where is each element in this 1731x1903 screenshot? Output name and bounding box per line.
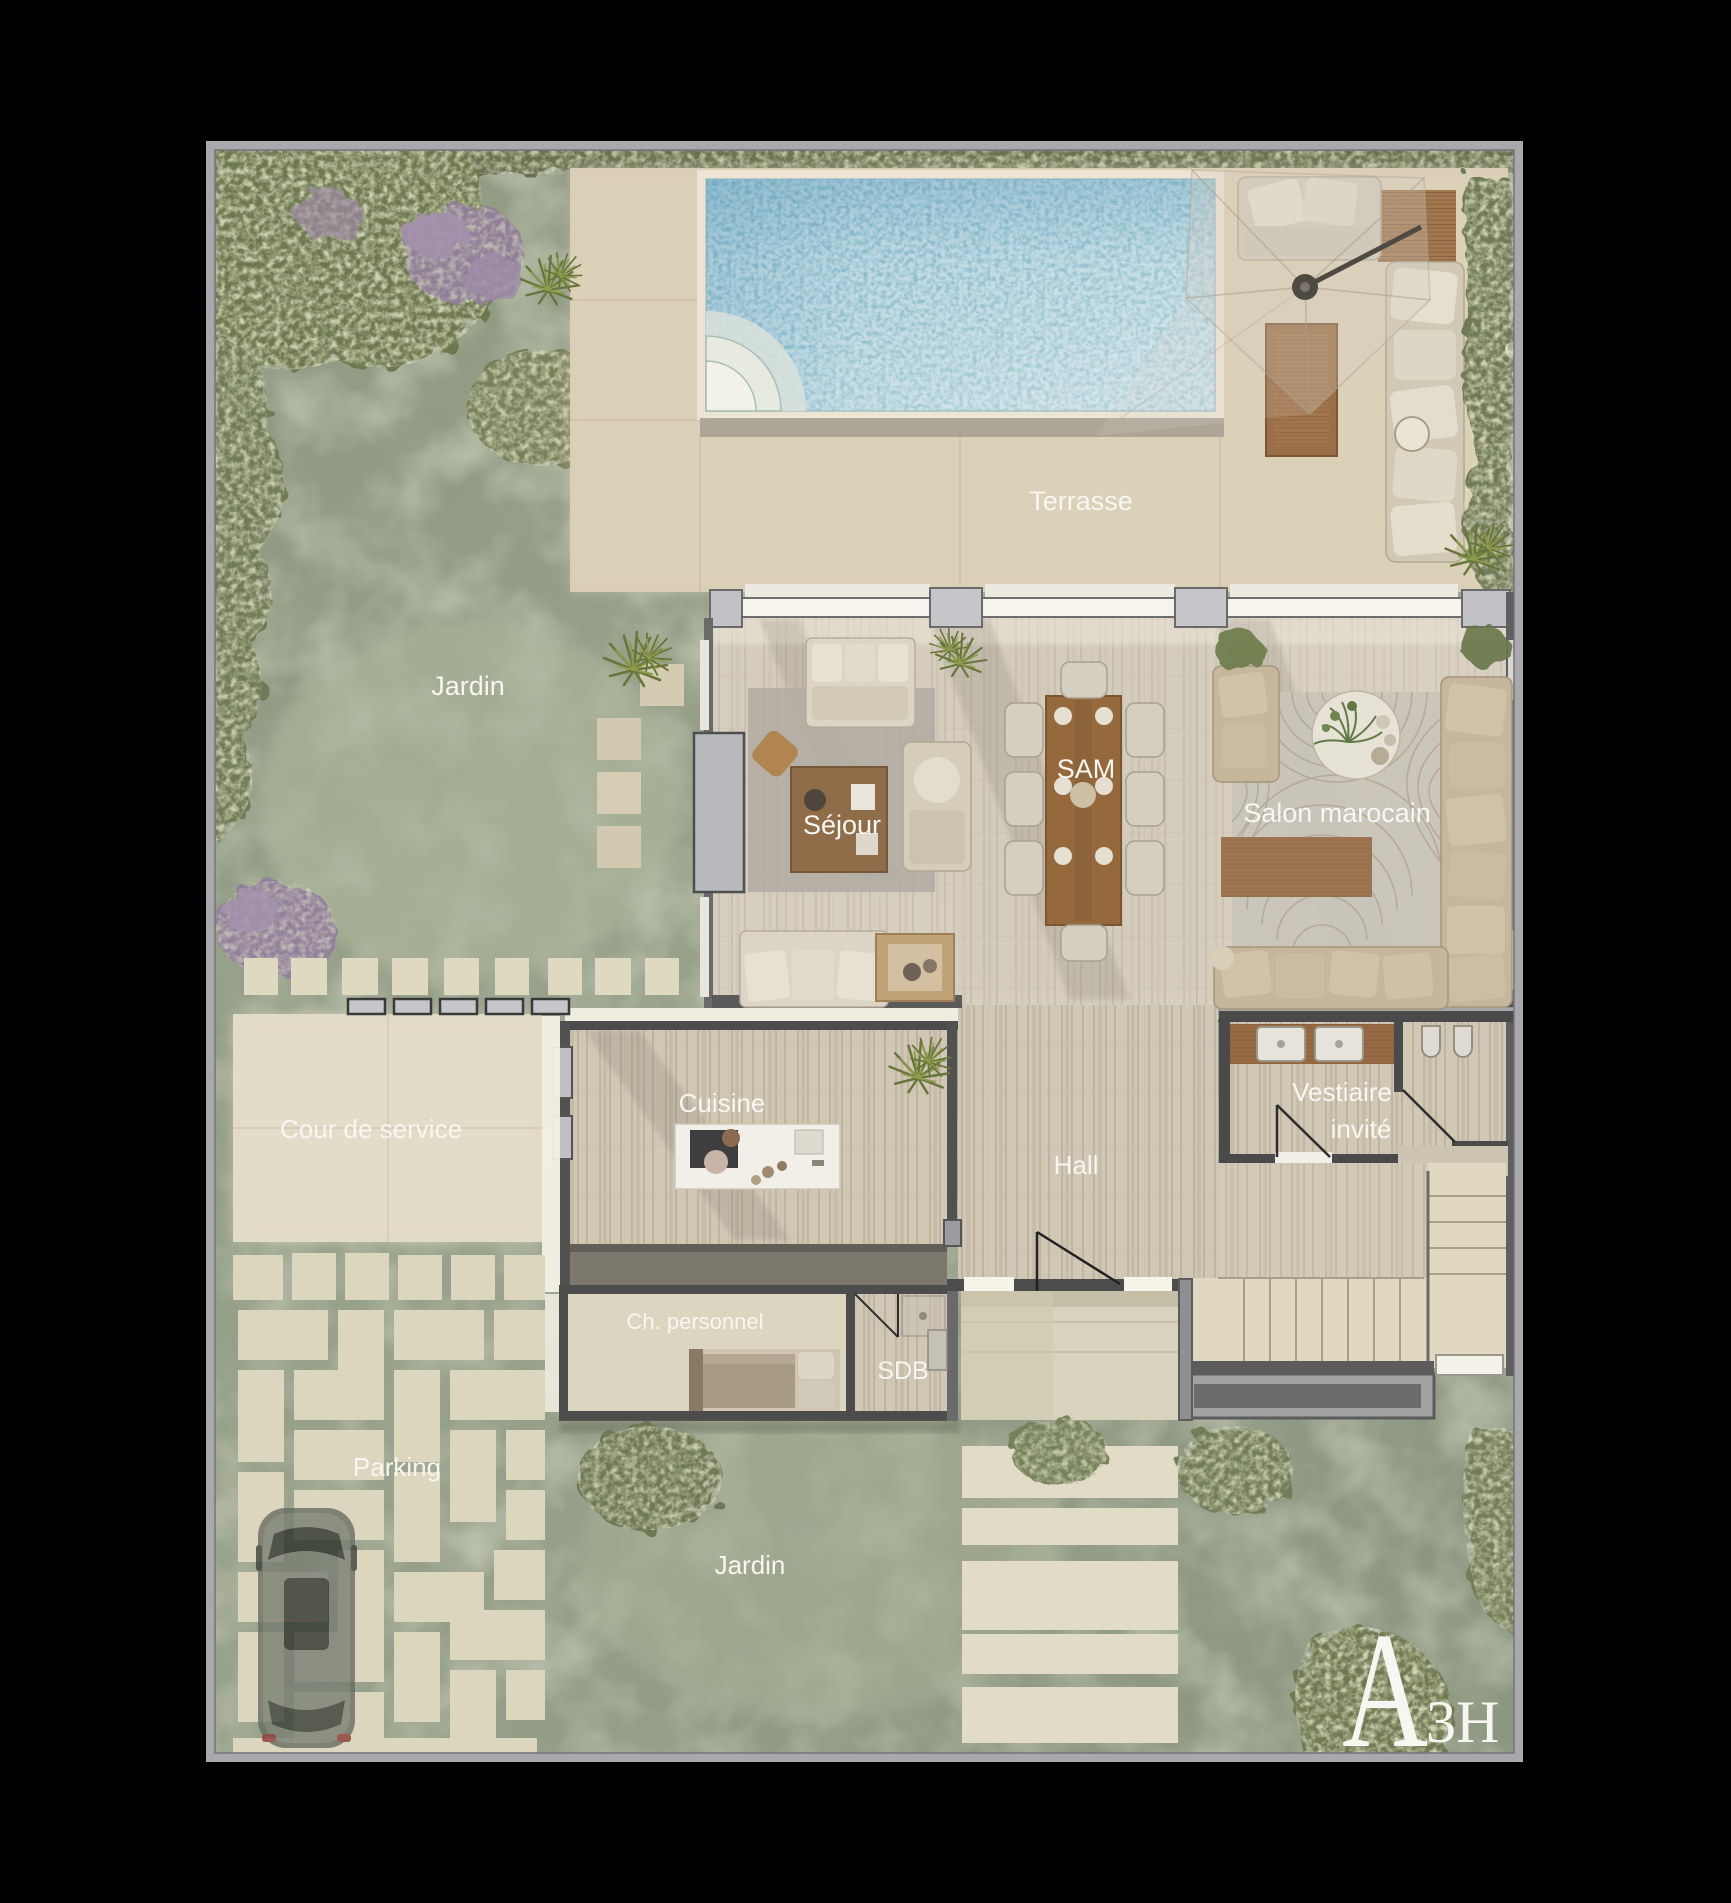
svg-text:Cuisine: Cuisine: [679, 1088, 766, 1118]
svg-text:Terrasse: Terrasse: [1029, 486, 1133, 516]
svg-text:SDB: SDB: [877, 1357, 928, 1385]
svg-text:SAM: SAM: [1057, 754, 1116, 784]
svg-text:Vestiaire: Vestiaire: [1292, 1077, 1392, 1107]
svg-text:Jardin: Jardin: [431, 671, 505, 701]
svg-text:A: A: [1342, 1598, 1428, 1762]
svg-text:3H: 3H: [1426, 1689, 1499, 1755]
svg-text:Salon marocain: Salon marocain: [1243, 798, 1431, 828]
svg-text:Ch. personnel: Ch. personnel: [627, 1309, 764, 1334]
svg-text:Séjour: Séjour: [803, 810, 881, 840]
svg-text:Jardin: Jardin: [715, 1550, 786, 1580]
svg-text:Cour de service: Cour de service: [280, 1114, 462, 1144]
svg-text:Hall: Hall: [1054, 1150, 1099, 1180]
svg-text:Parking: Parking: [353, 1452, 441, 1482]
svg-text:invité: invité: [1331, 1114, 1392, 1144]
